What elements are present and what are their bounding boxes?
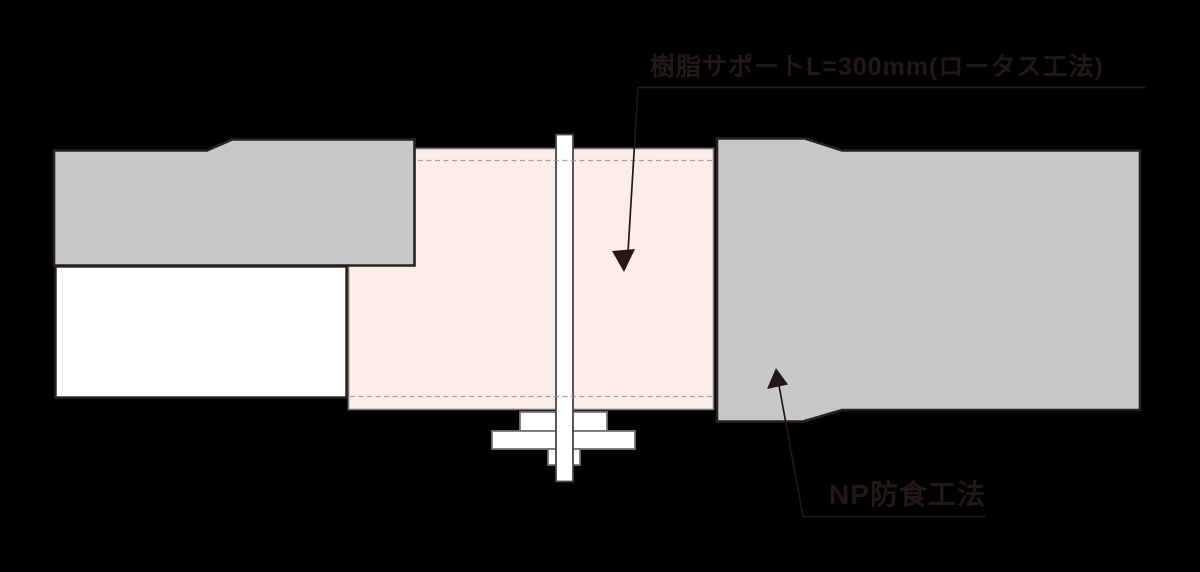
pipe-joint-diagram: 樹脂サポートL=300mm(ロータス工法) NP防食工法 — [0, 0, 1200, 572]
left-pipe — [54, 140, 415, 266]
diagram-canvas — [0, 0, 1200, 572]
anchor-bolt — [556, 135, 573, 482]
label-resin-support: 樹脂サポートL=300mm(ロータス工法) — [650, 55, 1104, 80]
left-pipe-bore — [56, 267, 347, 398]
label-np-coating: NP防食工法 — [829, 481, 986, 509]
